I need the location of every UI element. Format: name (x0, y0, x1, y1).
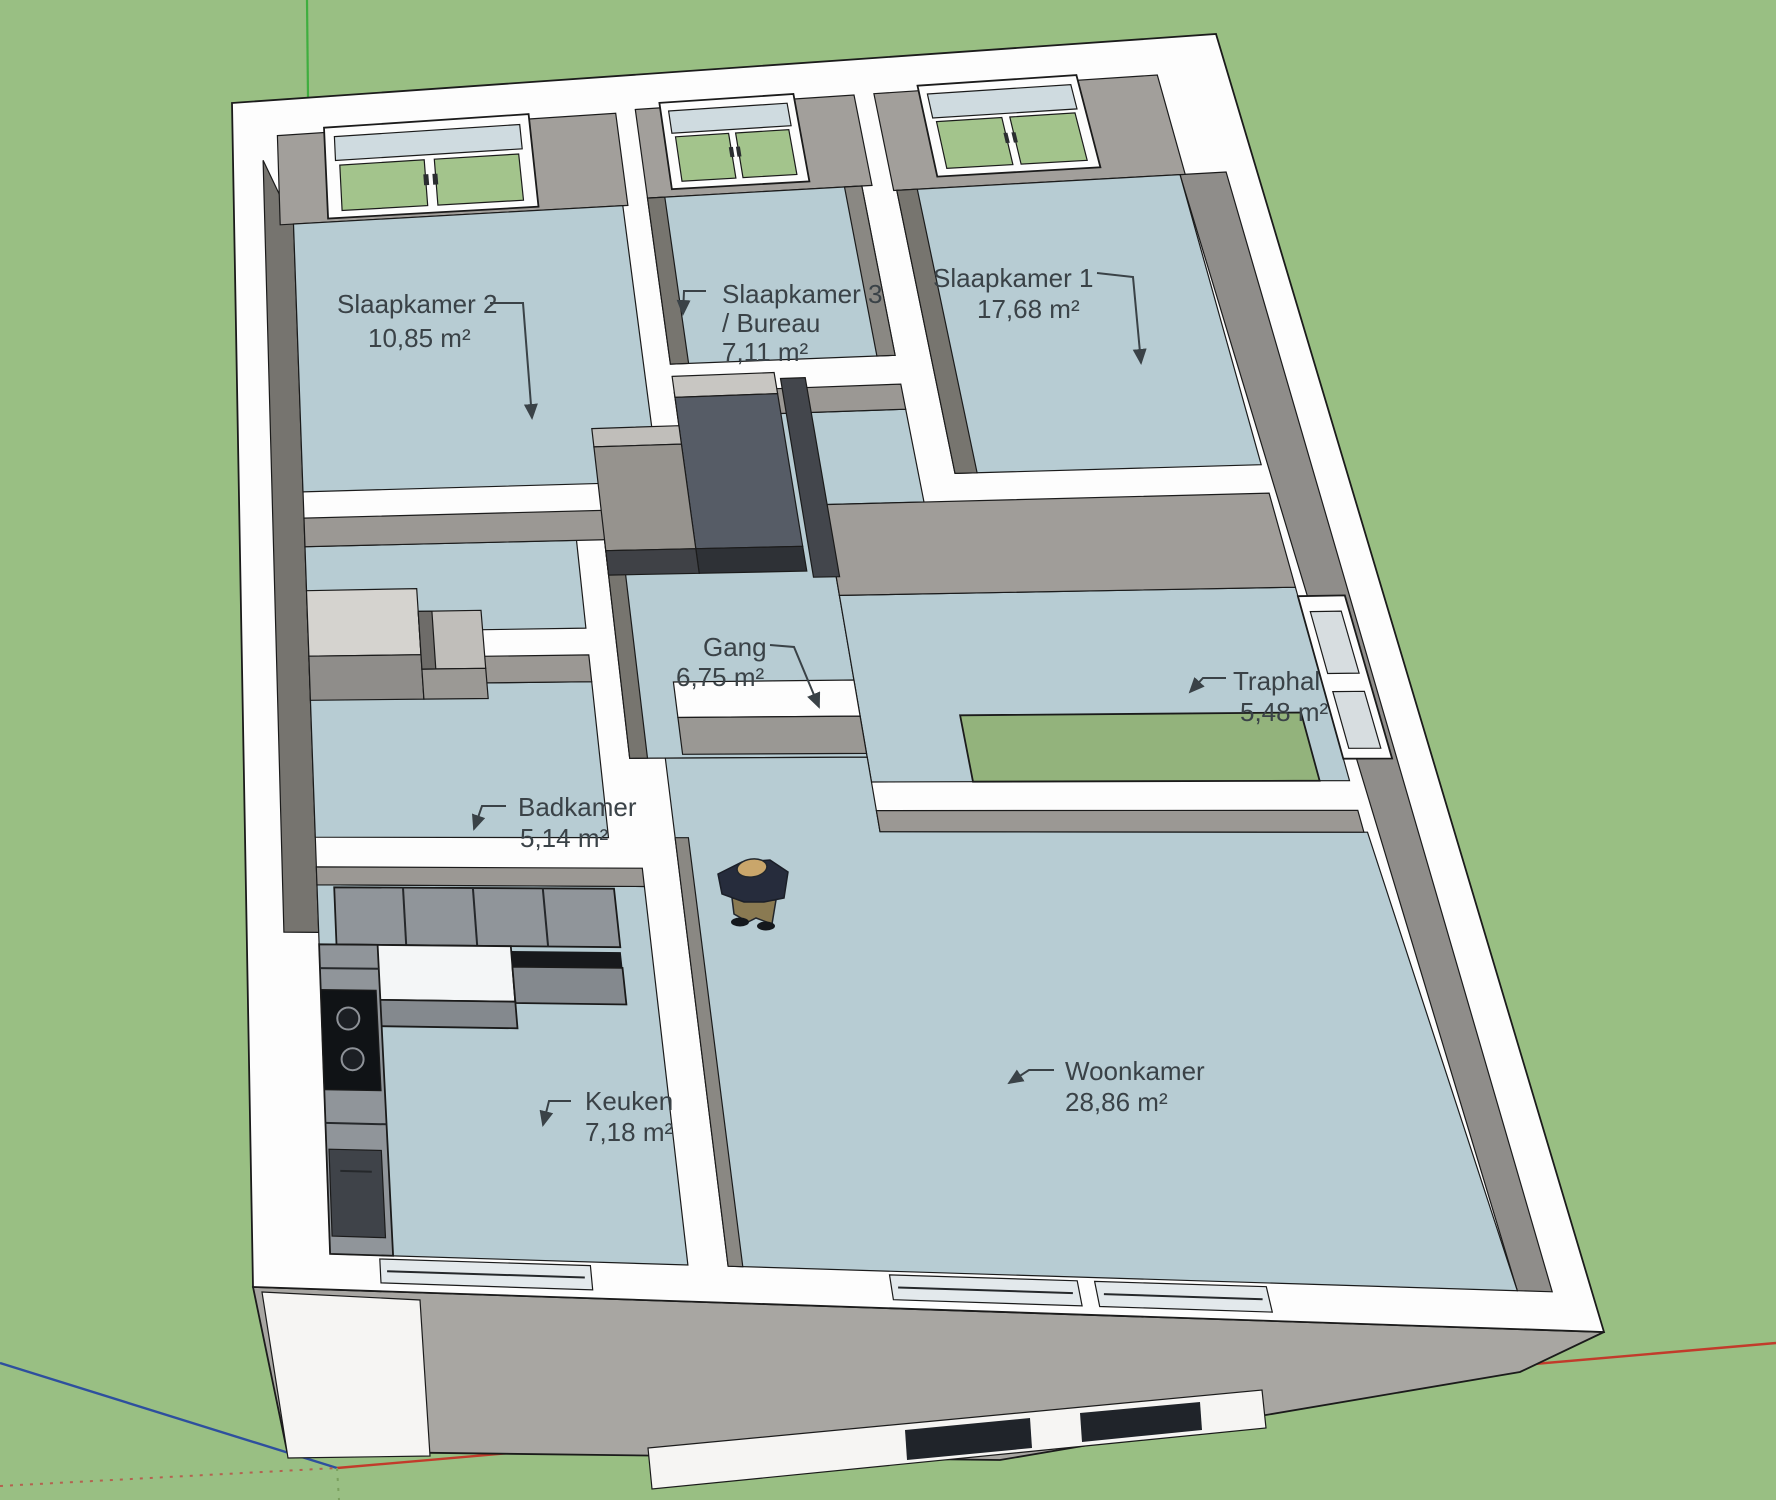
window-handle-icon (423, 174, 429, 185)
counter-seam (320, 968, 379, 969)
room-name: Gang (703, 632, 767, 662)
window-glass (340, 160, 428, 211)
room-name: Woonkamer (1065, 1056, 1205, 1086)
window-glass (736, 130, 797, 178)
room-area: 7,18 m² (585, 1117, 673, 1147)
cooktop (321, 990, 381, 1091)
window-glass (937, 118, 1013, 169)
counter-tiles-lower (374, 1000, 518, 1029)
keuken-north-wall-face (316, 867, 644, 887)
entry-wall-face (678, 716, 867, 754)
cabinet-top (592, 426, 682, 447)
traphal-north-wall-face (824, 493, 1296, 595)
room-label-keuken: Keuken 7,18 m² (585, 1086, 673, 1147)
block-front-face (309, 655, 424, 701)
room-name: Slaapkamer 1 (933, 263, 1093, 293)
woonkamer-north-wall-face (876, 810, 1364, 832)
counter-dark-edge (511, 951, 622, 968)
window-glass (434, 154, 523, 205)
room-name: Badkamer (518, 792, 637, 822)
window-glass (1010, 113, 1087, 164)
sink-faucet-icon (340, 1171, 372, 1172)
room-name: Slaapkamer 3 (722, 279, 882, 309)
green-axis-line (307, 0, 308, 98)
room-area: 6,75 m² (676, 662, 764, 692)
person-shoe (757, 922, 775, 931)
sketchup-viewport[interactable]: Slaapkamer 2 10,85 m² Slaapkamer 3 / Bur… (0, 0, 1776, 1500)
room-area: 5,48 m² (1240, 697, 1328, 727)
room-area: 10,85 m² (368, 323, 471, 353)
slaapkamer-3-window (659, 94, 809, 189)
corner-facade (262, 1292, 430, 1458)
person-shoe (731, 918, 749, 927)
cabinet-front-light (594, 444, 696, 551)
room-name: Traphal (1233, 666, 1320, 696)
block-top (307, 589, 422, 657)
room-name: Keuken (585, 1086, 673, 1116)
window-glass (676, 133, 736, 181)
sketchup-canvas[interactable]: Slaapkamer 2 10,85 m² Slaapkamer 3 / Bur… (0, 0, 1776, 1500)
room-name-line2: / Bureau (722, 308, 820, 338)
block-step-face (422, 668, 488, 699)
cooktop-burner-icon (342, 1048, 364, 1070)
room-area: 5,14 m² (520, 823, 608, 853)
cabinet-base (606, 549, 699, 575)
room-name: Slaapkamer 2 (337, 289, 497, 319)
slaapkamer-2-window (324, 114, 539, 218)
room-area: 7,11 m² (722, 337, 809, 367)
cooktop-burner-icon (337, 1008, 359, 1030)
window-handle-icon (432, 174, 438, 185)
counter-tiles-lower (512, 967, 626, 1005)
room-area: 17,68 m² (977, 294, 1080, 324)
room-area: 28,86 m² (1065, 1087, 1168, 1117)
counter-seam (325, 1123, 386, 1124)
room-label-traphal: Traphal 5,48 m² (1233, 666, 1328, 727)
cabinet-base (696, 546, 807, 573)
slaapkamer-1-window (918, 75, 1101, 177)
kitchen-sink (329, 1149, 386, 1238)
